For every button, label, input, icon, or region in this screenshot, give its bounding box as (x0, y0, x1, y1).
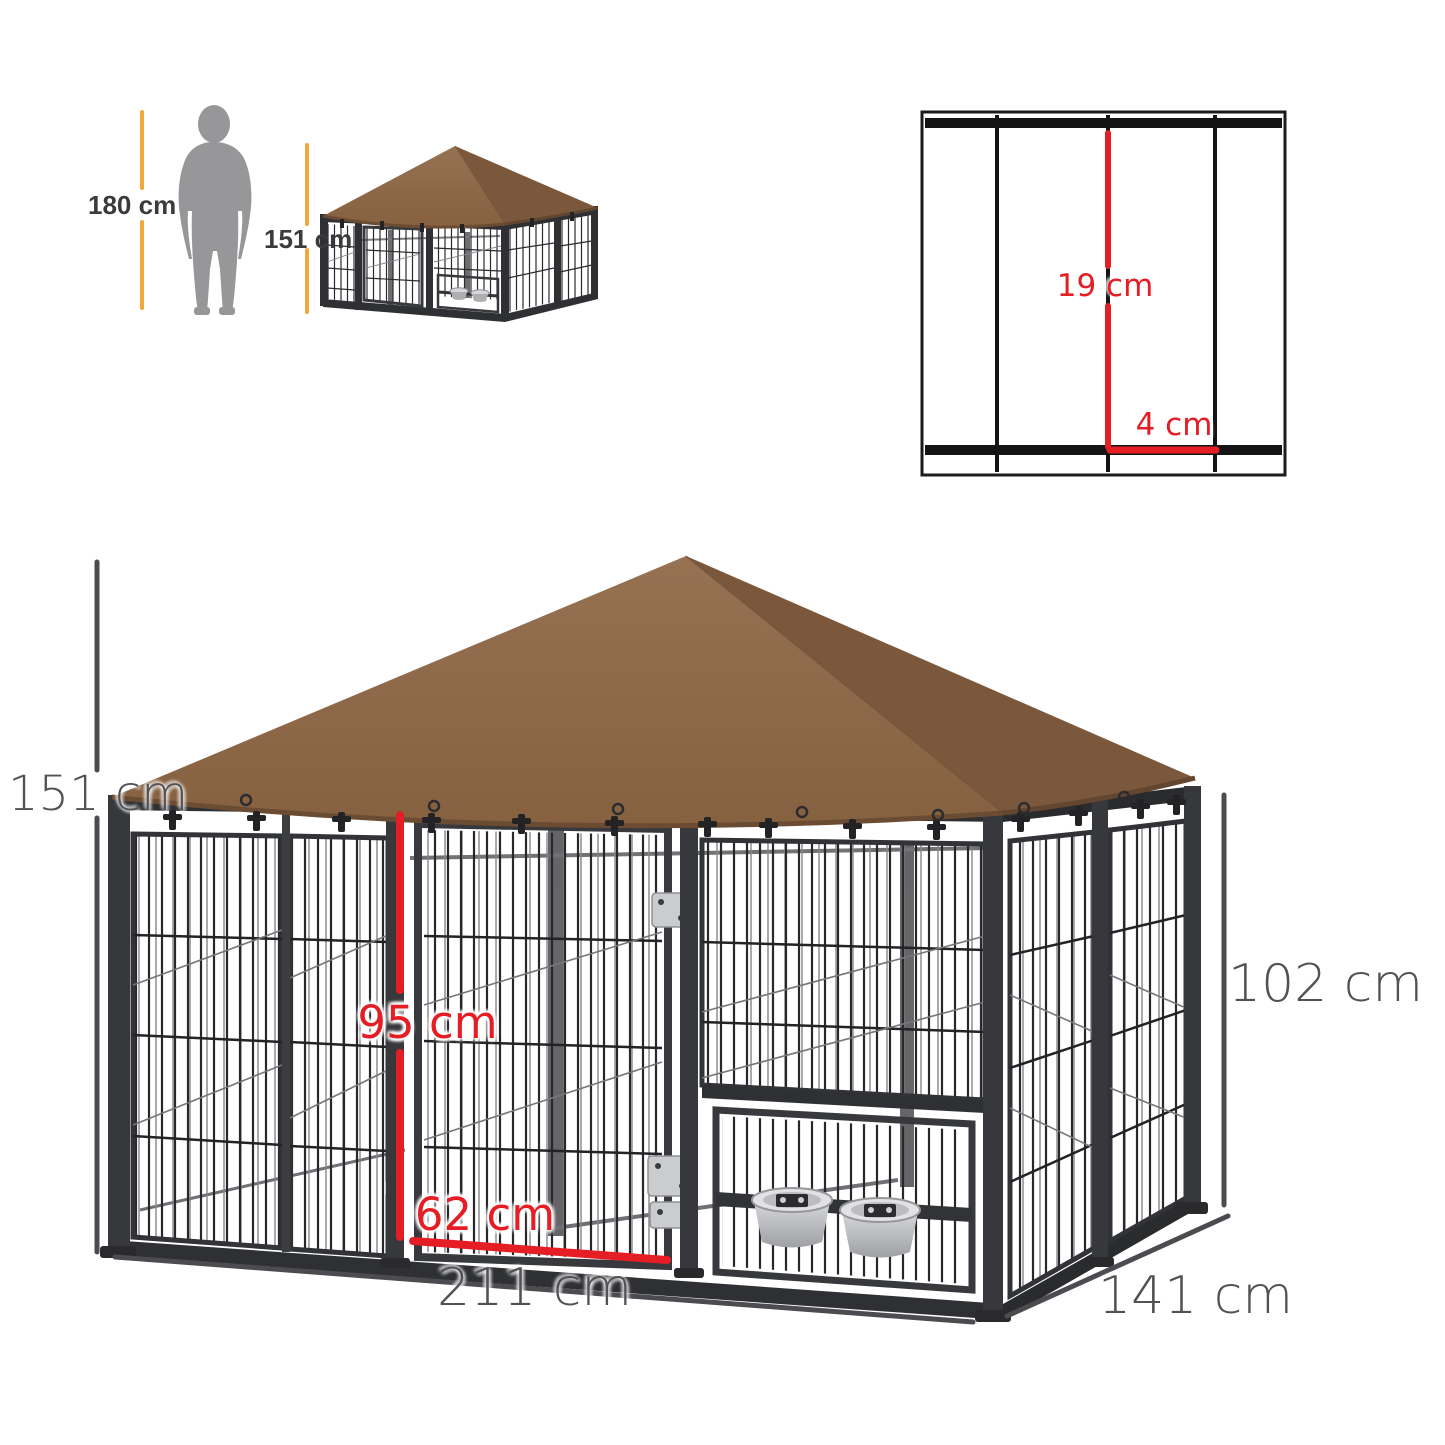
door-height-label: 95 cm (355, 1000, 500, 1045)
main-kennel (100, 556, 1208, 1322)
door-width-label: 62 cm (410, 1192, 560, 1237)
product-dimension-diagram: 180 cm 151 cm 19 cm 4 cm 151 cm 95 cm 62… (0, 0, 1445, 1445)
feeder-bowl-right (840, 1198, 920, 1258)
wire-vertical-gap-label: 19 cm (1038, 271, 1172, 302)
human-height-label: 180 cm (88, 192, 176, 218)
feeder-panel (702, 1085, 985, 1290)
thumbnail-height-label: 151 cm (264, 226, 352, 252)
kennel-roof (112, 556, 1195, 826)
feeder-bowl-left (752, 1188, 832, 1248)
side-height-label: 102 cm (1228, 958, 1413, 1010)
overall-depth-label: 141 cm (1098, 1270, 1293, 1322)
overall-height-label: 151 cm (8, 770, 178, 818)
kennel-thumbnail (320, 146, 598, 322)
overall-width-label: 211 cm (432, 1262, 637, 1314)
diagram-artwork (0, 0, 1445, 1445)
wire-horizontal-gap-label: 4 cm (1116, 410, 1232, 441)
thumbnail-roof (323, 146, 598, 227)
human-silhouette (179, 105, 252, 315)
